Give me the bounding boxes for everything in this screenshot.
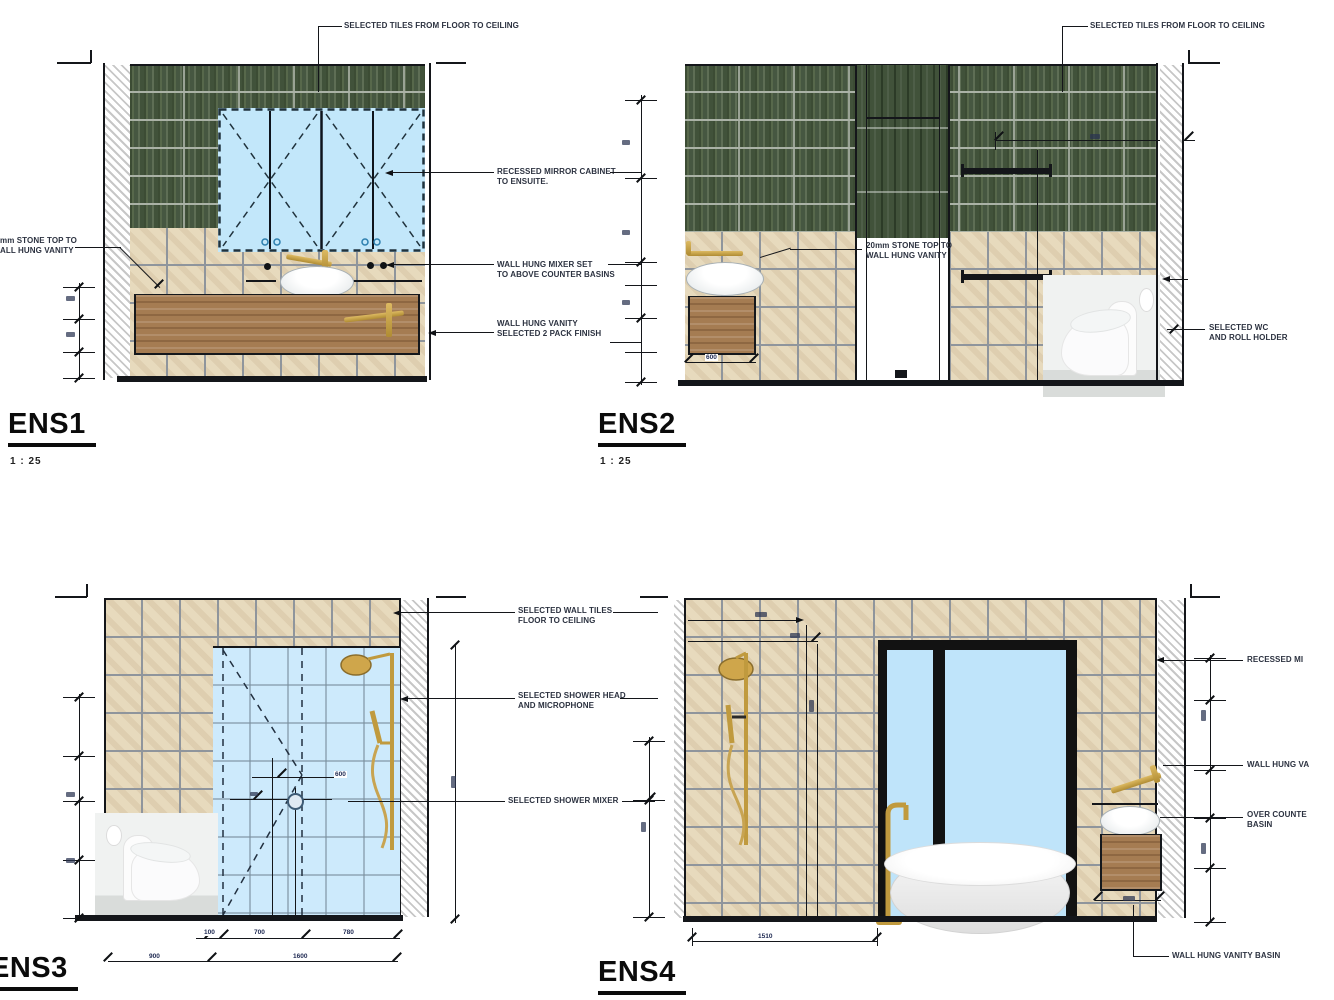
ens4-leader-wallhung-h <box>1163 765 1243 766</box>
ens2-leader-stone-h <box>790 249 862 250</box>
ens3-leader-tiles-h <box>399 612 515 613</box>
ens2-vanity-width-dim: 600 <box>705 354 718 361</box>
ens1-leader-tiles-h <box>318 26 342 27</box>
ens3-corner-mark-left <box>55 596 87 598</box>
ens3-dim-1600: 1600 <box>292 953 308 960</box>
ens4-corner-mark-right <box>1190 596 1220 598</box>
dim-text-illegible <box>755 612 767 617</box>
ens3-hatch-edge-r <box>427 598 429 917</box>
ens4-dim-bottom <box>692 941 877 942</box>
ens1-wall-top-line <box>130 64 425 66</box>
dim-text-illegible <box>1201 710 1206 721</box>
ens4-leader-basin-h <box>1133 956 1169 957</box>
ens4-corner-mark-right-v <box>1190 584 1192 597</box>
ens3-leader-head-h <box>406 698 515 699</box>
ens3-annotation-wall-tiles: SELECTED WALL TILES FLOOR TO CEILING <box>518 606 628 625</box>
dim-text-illegible <box>1201 843 1206 854</box>
ens4-dim-ext-bl <box>692 928 693 946</box>
ens3-leader-head-stub <box>620 698 658 699</box>
ens2-title: ENS2 <box>598 408 686 447</box>
dim-text-illegible <box>66 792 75 797</box>
ens4-leader-overcounter-h <box>1160 817 1243 818</box>
ens4-leader-recessed-h <box>1162 660 1243 661</box>
ens4-dim-top1-arrow <box>796 617 804 623</box>
ens4-title: ENS4 <box>598 956 686 995</box>
ens4-dim-ext-v2 <box>817 644 818 918</box>
ens1-leader-vanity-stub <box>610 342 641 343</box>
ens2-leader-tiles-h <box>1062 26 1088 27</box>
ens2-door-frame-left <box>855 65 857 382</box>
ens3-mixer-dim-h2 <box>230 799 332 800</box>
dim-text-illegible <box>641 822 646 832</box>
ens1-leader-mirror-h <box>391 172 494 173</box>
dim-text-illegible <box>1090 134 1100 139</box>
ens1-title: ENS1 <box>8 408 96 447</box>
dim-text-illegible <box>1123 896 1135 901</box>
rail-end <box>961 270 964 283</box>
ens4-floor-line <box>683 916 1157 922</box>
ens4-annotation-recessed-mirror: RECESSED MI <box>1247 655 1334 665</box>
ens1-recessed-mirror-cabinet <box>218 108 425 252</box>
ens4-dim-1510: 1510 <box>757 933 773 940</box>
ens2-annotation-wc: SELECTED WC AND ROLL HOLDER <box>1209 323 1299 342</box>
dim-text-illegible <box>622 140 630 145</box>
flush-plate-icon <box>106 825 122 846</box>
ens1-leader-mixer-h <box>392 264 494 265</box>
ens3-dim-row1 <box>196 938 400 939</box>
ens2-dim-line-mid-v <box>1037 150 1038 383</box>
ens2-door-bottom-mark <box>895 370 907 378</box>
ens4-counter-basin <box>1100 806 1160 836</box>
ens1-leader-tiles-v <box>318 26 319 92</box>
ens4-dim-line-right <box>1210 655 1211 923</box>
ens4-leader-basin-v <box>1133 905 1134 957</box>
ens4-annotation-wall-hung: WALL HUNG VA <box>1247 760 1334 770</box>
ens4-corner-mark-left <box>640 596 668 598</box>
shower-set-icon <box>328 643 400 858</box>
ens1-annotation-tiles: SELECTED TILES FROM FLOOR TO CEILING <box>344 21 524 31</box>
dim-text-illegible <box>66 332 75 337</box>
ens3-floor-line <box>75 915 403 921</box>
ens2-dim-ext-v <box>995 132 996 150</box>
ens4-annotation-vanity-basin: WALL HUNG VANITY BASIN <box>1172 951 1302 961</box>
ens1-wall-section-hatch <box>105 65 130 378</box>
ens4-dim-top2 <box>688 641 818 642</box>
ens2-dim-wc-h <box>1168 279 1188 280</box>
ens4-wall-top-line <box>685 598 1155 600</box>
ens3-dim-900: 900 <box>148 953 161 960</box>
ens2-wall-hung-vanity <box>688 296 756 355</box>
ens1-dim-line-left <box>79 283 80 380</box>
ens3-dim-row2 <box>108 961 398 962</box>
dim-text-illegible <box>790 633 800 638</box>
ens4-dim-ext-v1 <box>806 625 807 918</box>
dim-text-illegible <box>66 296 75 301</box>
ens4-dim-top1 <box>688 620 800 621</box>
ens3-shower-mixer <box>287 793 304 810</box>
ens2-wc-photo <box>1043 275 1165 397</box>
ens2-wall-section-hatch <box>1160 65 1182 382</box>
ens4-wall-hung-vanity <box>1100 834 1162 891</box>
shower-set-icon <box>702 645 782 855</box>
ens3-title: ENS3 <box>0 952 78 991</box>
ens3-mixer-dim-v1 <box>272 758 273 918</box>
dim-text-illegible <box>622 300 630 305</box>
ens1-annotation-stone-top: mm STONE TOP TO ALL HUNG VANITY <box>0 236 80 255</box>
ens1-annotation-mixer: WALL HUNG MIXER SET TO ABOVE COUNTER BAS… <box>497 260 617 279</box>
ens1-corner-mark-left-v <box>90 50 92 63</box>
ens2-floor-line <box>678 380 1184 386</box>
ens3-dim-line-left <box>79 694 80 920</box>
ens2-door-inner-right <box>939 65 940 380</box>
ens2-hatch-edge <box>1182 63 1184 383</box>
dim-text-illegible <box>622 230 630 235</box>
ens1-leader-vanity-h <box>434 332 494 333</box>
ens3-wall-top-line <box>105 598 400 600</box>
rail-end <box>961 164 964 177</box>
ens4-hatch-edge-r <box>1184 598 1186 918</box>
ens2-dim-stub <box>625 352 657 353</box>
ens1-leader-stone-h <box>75 247 121 248</box>
ens1-wall-edge-left <box>103 63 105 380</box>
ens1-vanity-tap-handle <box>386 303 392 337</box>
ens2-door-niche-tiles <box>855 65 950 238</box>
ens1-leader-mirror-stub <box>610 172 641 173</box>
bathroom-elevations-sheet: SELECTED TILES FROM FLOOR TO CEILING mm … <box>0 0 1334 1000</box>
dim-text-illegible <box>250 792 258 796</box>
ens3-wall-section-hatch <box>400 600 428 917</box>
rail-end <box>1049 164 1052 177</box>
toilet-image <box>1043 275 1165 397</box>
ens3-leader-tiles-stub <box>613 612 658 613</box>
ens2-wall-edge-right <box>1156 63 1158 383</box>
ens2-scale: 1 : 25 <box>600 456 632 467</box>
ens4-dim-ext-br <box>877 928 878 946</box>
ens3-dim-780: 780 <box>342 929 355 936</box>
ens4-dim-line-left <box>649 737 650 918</box>
ens2-vanity-dim-line <box>686 362 756 363</box>
ens2-wall-tap-spout <box>687 251 743 256</box>
ens4-counter-line <box>1092 803 1158 805</box>
ens3-dim-100: 100 <box>203 929 216 936</box>
ens3-dim-700: 700 <box>253 929 266 936</box>
bathtub-rim <box>884 842 1076 886</box>
toilet-image <box>95 813 218 919</box>
ens3-corner-mark-left-v <box>86 584 88 597</box>
ens2-dim-stub <box>625 285 657 286</box>
ens2-annotation-tiles: SELECTED TILES FROM FLOOR TO CEILING <box>1090 21 1270 31</box>
ens1-corner-mark-right <box>436 62 466 64</box>
dim-text-illegible <box>451 776 456 788</box>
ens3-corner-mark-right <box>436 596 466 598</box>
dim-text-illegible <box>66 858 75 863</box>
ens2-door-frame-right <box>948 65 950 382</box>
ens1-corner-mark-left <box>57 62 91 64</box>
ens1-counter-line-right <box>346 280 422 282</box>
ens2-annotation-stone-top: 20mm STONE TOP TO WALL HUNG VANITY <box>866 241 956 260</box>
mirror-door-swing-icon <box>218 108 425 252</box>
ens2-wall-tap-riser <box>686 241 691 255</box>
ens2-door-inner-left <box>866 65 867 380</box>
ens2-corner-mark-right-v <box>1188 50 1190 63</box>
ens2-door-transom-line <box>866 117 939 119</box>
ens1-scale: 1 : 25 <box>10 456 42 467</box>
ens2-counter-basin <box>686 262 764 296</box>
ens1-floor-line <box>117 376 427 382</box>
ens3-annotation-shower-head: SELECTED SHOWER HEAD AND MICROPHONE <box>518 691 633 710</box>
ens2-corner-mark-right <box>1188 62 1220 64</box>
ens1-annotation-mirror: RECESSED MIRROR CABINET TO ENSUITE. <box>497 167 617 186</box>
flush-plate-icon <box>1139 288 1154 312</box>
ens4-annotation-over-counter: OVER COUNTE BASIN <box>1247 810 1334 829</box>
ens1-mixer-dot-mid <box>367 262 374 269</box>
ens1-annotation-vanity: WALL HUNG VANITY SELECTED 2 PACK FINISH <box>497 319 617 338</box>
ens2-leader-wc-h <box>1167 329 1205 330</box>
ens1-wall-hung-vanity <box>134 294 420 355</box>
ens2-dim-line-left <box>641 95 642 385</box>
ens3-leader-mixer-h <box>348 801 505 802</box>
ens1-mixer-dot-left <box>264 263 271 270</box>
ens3-annotation-shower-mixer: SELECTED SHOWER MIXER <box>508 796 628 806</box>
ens4-wall-edge-left <box>684 598 686 918</box>
ens1-counter-line-left <box>246 280 276 282</box>
dim-text-illegible <box>809 700 814 712</box>
ens2-leader-tiles-v <box>1062 26 1063 92</box>
ens3-wc-photo <box>95 813 218 919</box>
